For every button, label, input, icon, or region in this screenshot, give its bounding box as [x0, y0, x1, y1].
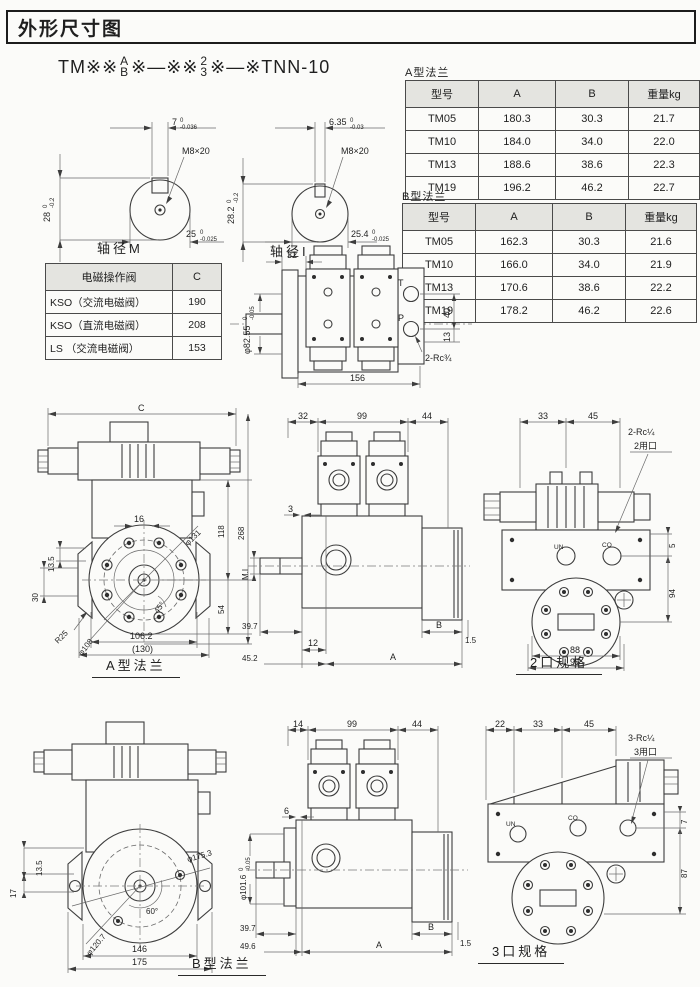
flange-b-front-view: 13.5 17 φ175.3 φ120.7 60° 146 175	[12, 716, 244, 974]
title-bar: 外形尺寸图	[6, 10, 696, 44]
cell: 22.2	[626, 277, 697, 300]
dim-fa-16: 16	[134, 514, 144, 524]
dim-fa-54: 54	[217, 605, 226, 614]
dim-sa-39-7: 39.7	[242, 622, 258, 631]
cell: 38.6	[553, 277, 626, 300]
svg-text:118: 118	[217, 525, 226, 538]
valve-stack-2	[354, 246, 398, 370]
model-stack-ab: A B	[120, 56, 129, 78]
cell: LS （交流电磁阀）	[46, 337, 173, 360]
label-s3-ports: 3-Rc¼	[628, 733, 655, 743]
tol: 0	[200, 230, 204, 236]
spec3-valve	[490, 760, 678, 804]
cell: 190	[173, 291, 222, 314]
dim-sa-3: 3	[288, 504, 293, 514]
dim-plan-156: 156	[350, 373, 365, 383]
caption-shaft-m: 轴径M	[97, 238, 143, 257]
pump-plan-view: T P 32 φ82.55 0 -0.05 156 40 13 2	[222, 242, 500, 394]
cell: 184.0	[479, 131, 556, 154]
dim-shaft-i-height: 28.2 0 -0.2	[226, 192, 240, 224]
flange-a-front-view: C 16 13.5 30 R25 φ108 φ131 45° 118 268 5…	[30, 400, 258, 660]
dim-plan-40: 40	[442, 308, 452, 318]
dim-s3-45: 45	[584, 719, 594, 729]
table-row: LS （交流电磁阀） 153	[46, 337, 222, 360]
svg-text:28: 28	[42, 212, 52, 222]
table-row: KSO（交流电磁阀） 190	[46, 291, 222, 314]
header-cell: 电磁操作阀	[46, 264, 173, 291]
dim-fb-146: 146	[132, 944, 147, 954]
spec3-flange	[512, 852, 625, 944]
table-row: 型号 A B 重量kg	[406, 81, 700, 108]
label-port-p: P	[398, 313, 404, 323]
shaft-i-drawing: 6.35 0 -0.03 28.2 0 -0.2 M8×20 25.4 0 -0…	[225, 92, 400, 244]
label-sa-shaft: M.I	[241, 569, 250, 580]
tol: 0	[350, 118, 354, 124]
header-cell: 型号	[406, 81, 479, 108]
svg-text:-0.2: -0.2	[234, 192, 240, 203]
cell: 38.6	[556, 154, 629, 177]
dim-sb-a: A	[376, 940, 382, 950]
caption-spec2: 2口规格	[516, 652, 602, 675]
dim-s3-33: 33	[533, 719, 543, 729]
dim-shaft-m-height: 28 0 -0.2	[42, 197, 56, 222]
cell: 21.7	[629, 108, 700, 131]
dim-sa-12: 12	[308, 638, 318, 648]
cell: TM05	[406, 108, 479, 131]
table-solenoid: 电磁操作阀 C KSO（交流电磁阀） 190 KSO（直流电磁阀） 208 LS…	[45, 263, 222, 360]
svg-text:7: 7	[680, 819, 689, 824]
cell: 153	[173, 337, 222, 360]
label-fb-60: 60°	[146, 907, 158, 916]
solenoid-valve-b	[34, 722, 226, 780]
dim-s3-7: 7	[680, 819, 689, 824]
table-row: TM13 188.6 38.6 22.3	[406, 154, 700, 177]
svg-text:M.I: M.I	[241, 569, 250, 580]
dim-sa-b: B	[436, 620, 442, 630]
svg-text:-0.05: -0.05	[250, 306, 256, 320]
shaft-m-drawing: 7 0 -0.036 28 0 -0.2 M8×20 25 0 -0.025	[38, 92, 233, 244]
dim-shaft-m-dia: 25	[186, 229, 196, 239]
dim-fa-106-2: 106.2	[130, 631, 153, 641]
table-row: 型号 A B 重量kg	[403, 204, 697, 231]
label-s2-ports: 2-Rc¼	[628, 427, 655, 437]
model-stack-23: 2 3	[200, 56, 208, 78]
svg-text:R25: R25	[53, 628, 70, 645]
pump-body-side	[248, 516, 470, 620]
cell: 46.2	[556, 177, 629, 200]
dim-sa-99: 99	[357, 411, 367, 421]
cell: 208	[173, 314, 222, 337]
svg-text:17: 17	[9, 889, 18, 898]
label-shaft-i-thread: M8×20	[341, 146, 369, 156]
label-port-t: T	[398, 278, 404, 288]
spec2-valve	[484, 472, 650, 530]
dim-sb-49-6: 49.6	[240, 942, 256, 951]
table-flange-a: 型号 A B 重量kg TM05 180.3 30.3 21.7 TM10 18…	[405, 80, 700, 200]
svg-text:0: 0	[43, 204, 49, 208]
dim-sb-6: 6	[284, 806, 289, 816]
header-cell: A	[479, 81, 556, 108]
table-row: KSO（直流电磁阀） 208	[46, 314, 222, 337]
dim-shaft-i-key-width: 6.35	[329, 117, 347, 127]
header-cell: C	[173, 264, 222, 291]
header-cell: B	[556, 81, 629, 108]
svg-text:-0.2: -0.2	[50, 197, 56, 208]
dim-s3-22: 22	[495, 719, 505, 729]
svg-text:30: 30	[31, 593, 40, 602]
spec3-port-block	[488, 804, 664, 862]
cell: 46.2	[553, 300, 626, 323]
cell: 22.0	[629, 131, 700, 154]
dim-fa-13-5: 13.5	[47, 556, 56, 572]
svg-text:40: 40	[442, 308, 452, 318]
tol: -0.036	[180, 125, 198, 131]
caption-flange-a-view: A型法兰	[92, 655, 180, 678]
dim-sa-44: 44	[422, 411, 432, 421]
valve-stack-1	[306, 246, 350, 370]
header-cell: 重量kg	[626, 204, 697, 231]
cell: 196.2	[479, 177, 556, 200]
svg-text:0: 0	[239, 867, 245, 871]
model-mid: ※—※※	[131, 57, 198, 78]
svg-text:54: 54	[217, 605, 226, 614]
model-stack-b: B	[120, 67, 129, 78]
dim-sa-45-2: 45.2	[242, 654, 258, 663]
header-cell: 重量kg	[629, 81, 700, 108]
svg-text:94: 94	[668, 589, 677, 598]
label-shaft-m-thread: M8×20	[182, 146, 210, 156]
tol: 0	[372, 230, 376, 236]
cell: 22.7	[629, 177, 700, 200]
svg-text:5: 5	[668, 543, 677, 548]
header-cell: B	[553, 204, 626, 231]
cell: TM10	[406, 131, 479, 154]
svg-text:φ120.7: φ120.7	[85, 932, 108, 958]
cell: 22.3	[629, 154, 700, 177]
svg-text:13: 13	[442, 332, 452, 342]
dim-sb-44: 44	[412, 719, 422, 729]
label-s3-un: UN	[506, 821, 516, 828]
tol: -0.03	[350, 125, 364, 131]
svg-text:-0.05: -0.05	[246, 857, 252, 871]
table-row: TM05 180.3 30.3 21.7	[406, 108, 700, 131]
solenoid-valve	[38, 422, 240, 480]
cell: 34.0	[556, 131, 629, 154]
side-view-a: 32 99 44 3 M.I 39.7 B 1.5 12 45.2 A	[240, 408, 475, 676]
label-s2-port-name: 2用口	[634, 441, 657, 451]
svg-text:0: 0	[227, 199, 233, 203]
caption-spec3: 3口规格	[478, 941, 564, 964]
dim-shaft-i-dia: 25.4	[351, 229, 369, 239]
cell: KSO（直流电磁阀）	[46, 314, 173, 337]
cell: 21.6	[626, 231, 697, 254]
cell: TM13	[406, 154, 479, 177]
header-cell: A	[476, 204, 553, 231]
model-code: TM※※ A B ※—※※ 2 3 ※—※TNN-10	[58, 56, 330, 78]
dim-s2-5: 5	[668, 543, 677, 548]
dim-sa-a: A	[390, 652, 396, 662]
label-s2-co: CO	[602, 542, 612, 549]
cell: 188.6	[479, 154, 556, 177]
dim-fa-118: 118	[217, 525, 226, 538]
label-s3-co: CO	[568, 815, 578, 822]
dim-fa-c: C	[138, 403, 145, 413]
svg-text:13.5: 13.5	[35, 860, 44, 876]
dim-plan-13: 13	[442, 332, 452, 342]
header-cell: 型号	[403, 204, 476, 231]
dim-sb-b: B	[428, 922, 434, 932]
label-plan-ports: 2-Rc¾	[425, 353, 452, 363]
label-fb-dia120: φ120.7	[85, 932, 108, 958]
dim-fb-175: 175	[132, 957, 147, 967]
dim-s2-33: 33	[538, 411, 548, 421]
cell: 21.9	[626, 254, 697, 277]
dim-fb-17: 17	[9, 889, 18, 898]
dim-plan-32: 32	[287, 250, 297, 260]
spec2-view: 33 45 2-Rc¼ 2用口 UN CO 5 94 88 93	[462, 408, 695, 672]
cell: 30.3	[556, 108, 629, 131]
dim-sb-99: 99	[347, 719, 357, 729]
valve-towers	[318, 432, 408, 516]
model-stack-3: 3	[200, 67, 208, 78]
cell: KSO（交流电磁阀）	[46, 291, 173, 314]
tol: 0	[180, 118, 184, 124]
dim-s2-45: 45	[588, 411, 598, 421]
model-suffix: ※—※TNN-10	[210, 57, 330, 78]
label-fa-r25: R25	[53, 628, 70, 645]
dim-shaft-m-key-width: 7	[172, 117, 177, 127]
table-row: 电磁操作阀 C	[46, 264, 222, 291]
spec3-view: 22 33 45 3-Rc¼ 3用口 UN CO 7 87	[458, 716, 700, 968]
svg-text:28.2: 28.2	[226, 206, 236, 224]
model-prefix: TM※※	[58, 57, 118, 78]
dim-fb-13-5: 13.5	[35, 860, 44, 876]
label-s3-port-name: 3用口	[634, 747, 657, 757]
drawing-sheet: 外形尺寸图 TM※※ A B ※—※※ 2 3 ※—※TNN-10	[0, 0, 700, 987]
pump-body-side-b	[246, 820, 468, 922]
label-s2-un: UN	[554, 544, 564, 551]
valve-towers-b	[308, 740, 398, 820]
dim-fa-130: (130)	[132, 644, 153, 654]
dim-s3-87: 87	[680, 869, 689, 878]
table-row: TM10 184.0 34.0 22.0	[406, 131, 700, 154]
side-view-b: 14 99 44 6 φ101.6 0 -0.05 39.7 B 1.5 49.…	[240, 716, 475, 968]
tol: -0.025	[200, 237, 218, 243]
cell: 180.3	[479, 108, 556, 131]
svg-text:13.5: 13.5	[47, 556, 56, 572]
dim-sb-14: 14	[293, 719, 303, 729]
table-row: TM19 196.2 46.2 22.7	[406, 177, 700, 200]
svg-text:87: 87	[680, 869, 689, 878]
svg-text:φ101.6: φ101.6	[239, 874, 248, 900]
shaft-m-section	[130, 178, 190, 240]
shaft-i-section	[292, 184, 348, 242]
cell: 30.3	[553, 231, 626, 254]
dim-sa-32: 32	[298, 411, 308, 421]
dim-sb-39-7: 39.7	[240, 924, 256, 933]
cell: 22.6	[626, 300, 697, 323]
cell: 34.0	[553, 254, 626, 277]
svg-text:φ82.55: φ82.55	[242, 326, 252, 354]
page-title: 外形尺寸图	[18, 14, 123, 41]
dim-fa-30: 30	[31, 593, 40, 602]
dim-s2-94: 94	[668, 589, 677, 598]
